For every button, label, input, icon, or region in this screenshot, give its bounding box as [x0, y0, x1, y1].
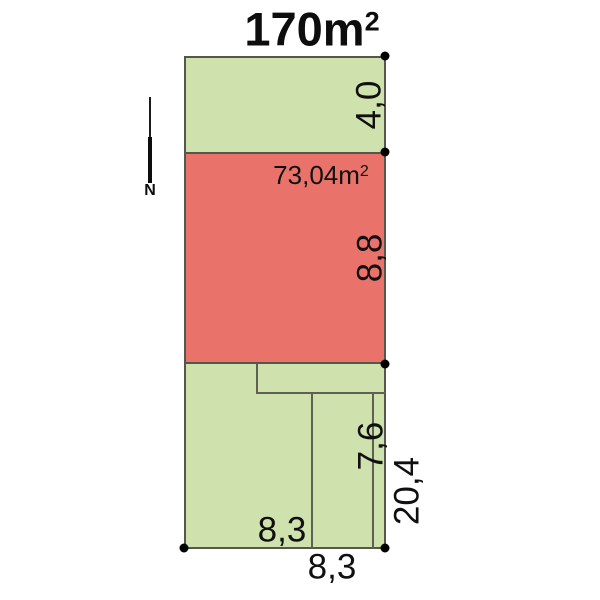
dim-label-back-depth: 7,6: [354, 422, 389, 471]
boundary-marker-dot: [381, 544, 390, 553]
inner-boundary-line: [372, 392, 374, 549]
boundary-marker-dot: [381, 148, 390, 157]
boundary-marker-dot: [381, 52, 390, 61]
site-plan: 170m2 N 73,04m2 4,0 8,8 7,6 20,4 8,3 8,3: [0, 0, 600, 600]
total-area-superscript: 2: [365, 7, 380, 37]
boundary-marker-dot: [180, 544, 189, 553]
north-label: N: [144, 182, 156, 200]
dim-label-total-width: 8,3: [308, 550, 357, 585]
north-arrow-shaft-icon: [149, 97, 151, 138]
inner-boundary-line: [256, 392, 386, 394]
building-area-label: 73,04m2: [273, 162, 369, 188]
building-area-value: 73,04m: [273, 160, 360, 190]
boundary-marker-dot: [381, 360, 390, 369]
building-area-superscript: 2: [360, 163, 369, 180]
dim-label-front-depth: 4,0: [352, 81, 387, 130]
dim-label-total-depth: 20,4: [390, 457, 425, 525]
dim-label-inner-width: 8,3: [258, 513, 307, 548]
north-arrow-body-icon: [148, 137, 152, 183]
inner-boundary-line: [256, 364, 258, 394]
total-area-value: 170m: [244, 3, 364, 56]
dim-label-building-depth: 8,8: [353, 234, 388, 283]
total-area-title: 170m2: [244, 2, 379, 57]
inner-boundary-line: [311, 392, 313, 549]
